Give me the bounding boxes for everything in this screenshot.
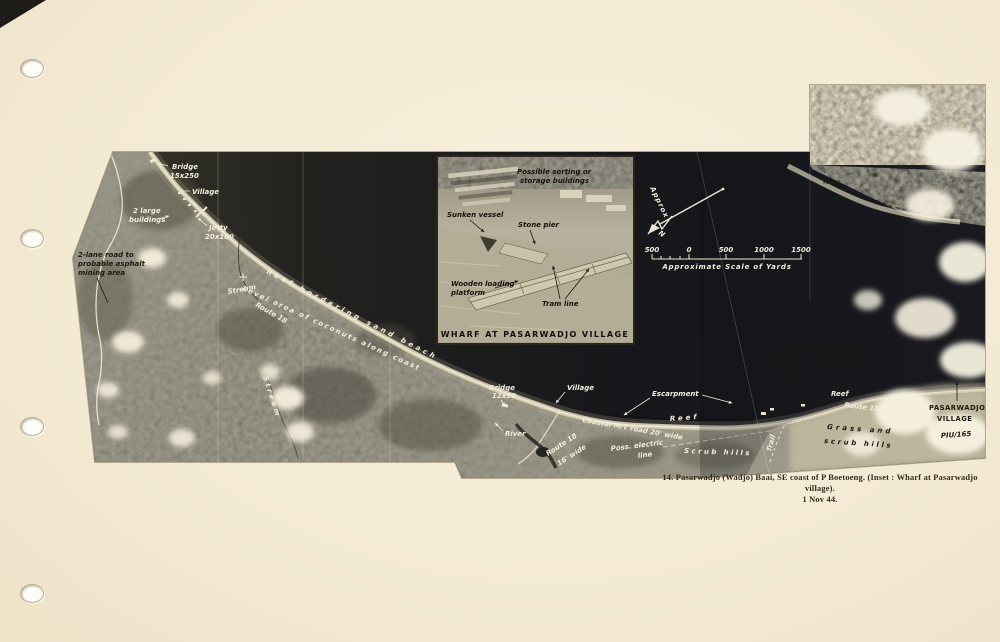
building [178, 192, 181, 194]
label-escarpment: Escarpment [652, 390, 699, 398]
label-sunken-vessel: Sunken vessel [447, 211, 504, 219]
label-platform-2: platform [450, 289, 485, 297]
cloud [167, 292, 189, 308]
label-bridge-nw-size: 15x250 [170, 172, 199, 180]
label-reef-e: Reef [831, 390, 850, 398]
figure-caption-line2: 1 Nov 44. [652, 495, 988, 506]
album-page: Bridge 15x250 Village 2 large buildings … [0, 0, 1000, 642]
building [194, 210, 197, 212]
cloud [874, 90, 930, 126]
label-sorting-2: storage buildings [520, 177, 589, 185]
scale-tick-label: 500 [645, 246, 660, 254]
label-two-lane-road-2: probable asphalt [77, 260, 146, 268]
building [761, 412, 766, 415]
building [770, 408, 774, 411]
label-2-large-buildings: buildings [129, 216, 165, 224]
label-jap-camp-3: point [778, 364, 800, 372]
label-tram-line: Tram line [542, 300, 579, 308]
cloud [939, 242, 991, 282]
building [183, 198, 186, 200]
cloud [108, 425, 128, 439]
label-bridge-s-size: 12x50 [492, 392, 516, 400]
scale-tick-label: 1500 [791, 246, 811, 254]
label-two-lane-road-1: 2-lane road to [78, 251, 134, 259]
label-river: River [505, 430, 526, 438]
label-2-large: 2 large [133, 207, 161, 215]
cloud [940, 342, 996, 378]
aerial-photo-mosaic: Bridge 15x250 Village 2 large buildings … [0, 0, 1000, 642]
label-pasarwadjo: PASARWADJO [929, 404, 985, 412]
cloud [112, 331, 144, 353]
scale-tick-label: 0 [687, 246, 692, 254]
label-bridge-nw: Bridge [172, 163, 198, 171]
label-jetty-size: 20x100 [205, 233, 234, 241]
inset-wharf-photo: Possible sorting or storage buildings Su… [437, 156, 634, 344]
cloud [854, 290, 882, 310]
label-jetty: Jetty [207, 224, 228, 232]
label-pasarwadjo-village: VILLAGE [937, 415, 972, 423]
cloud [895, 298, 955, 338]
label-bridge-s: Bridge [489, 384, 515, 392]
label-stone-pier: Stone pier [518, 221, 560, 229]
scale-tick-label: 500 [719, 246, 734, 254]
scale-tick-label: 1000 [754, 246, 774, 254]
cloud [97, 382, 119, 398]
building [606, 205, 626, 211]
building [560, 190, 582, 198]
cloud [922, 128, 982, 172]
figure-caption-line1: 14. Pasarwadjo (Wadjo) Baai, SE coast of… [652, 473, 988, 495]
cloud [203, 371, 221, 385]
label-platform-1: Wooden loading [451, 280, 514, 288]
label-village-s: Village [567, 384, 594, 392]
figure-caption: 14. Pasarwadjo (Wadjo) Baai, SE coast of… [652, 473, 988, 506]
label-jap-camp-1: Large buildings, prob. [781, 346, 868, 354]
scale-bar-caption: Approximate Scale of Yards [661, 263, 791, 271]
inset-title: WHARF AT PASARWADJO VILLAGE [441, 330, 630, 339]
cloud [169, 429, 195, 447]
building [188, 204, 191, 206]
label-jap-camp-2: Jap camp and supply [777, 355, 861, 363]
building [801, 404, 805, 407]
terrain-shadow [378, 399, 482, 451]
cloud [906, 189, 954, 221]
label-village-nw: Village [192, 188, 219, 196]
building [586, 195, 612, 202]
north-arrow-tail [722, 188, 725, 191]
label-sorting-1: Possible sorting or [517, 168, 592, 176]
cloud [286, 422, 314, 442]
label-two-lane-road-3: mining area [78, 269, 125, 277]
